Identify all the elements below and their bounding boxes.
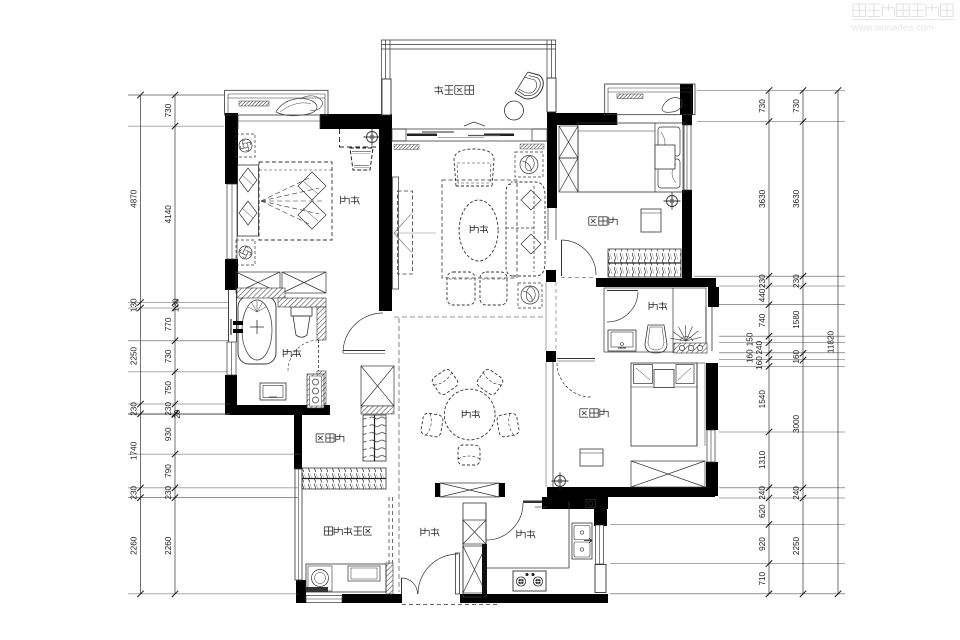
svg-text:3630: 3630: [758, 189, 767, 208]
svg-text:130: 130: [129, 298, 138, 312]
svg-text:230: 230: [792, 274, 801, 288]
svg-text:230: 230: [129, 402, 138, 416]
svg-text:1580: 1580: [792, 310, 801, 329]
svg-text:11820: 11820: [827, 330, 836, 353]
svg-text:240: 240: [792, 486, 801, 500]
svg-text:4140: 4140: [164, 205, 173, 224]
svg-text:750: 750: [164, 381, 173, 395]
svg-text:2260: 2260: [129, 536, 138, 555]
svg-text:3000: 3000: [792, 414, 801, 433]
svg-text:150: 150: [746, 332, 755, 346]
svg-text:2260: 2260: [164, 536, 173, 555]
svg-text:130: 130: [171, 298, 180, 312]
svg-text:4870: 4870: [129, 189, 138, 208]
svg-text:230: 230: [758, 274, 767, 288]
svg-text:920: 920: [758, 537, 767, 551]
svg-text:790: 790: [164, 464, 173, 478]
svg-text:160: 160: [746, 349, 755, 363]
svg-text:1540: 1540: [758, 390, 767, 409]
svg-text:730: 730: [758, 99, 767, 113]
svg-text:770: 770: [164, 317, 173, 331]
svg-text:930: 930: [164, 427, 173, 441]
svg-text:730: 730: [164, 103, 173, 117]
svg-text:240: 240: [758, 486, 767, 500]
svg-text:www.wonadea.com: www.wonadea.com: [851, 23, 934, 34]
svg-text:3630: 3630: [792, 189, 801, 208]
svg-text:230: 230: [129, 486, 138, 500]
svg-text:1310: 1310: [758, 450, 767, 469]
svg-text:2250: 2250: [129, 346, 138, 365]
svg-text:730: 730: [792, 99, 801, 113]
svg-text:620: 620: [758, 504, 767, 518]
svg-text:160: 160: [755, 356, 764, 370]
svg-text:2250: 2250: [792, 536, 801, 555]
svg-text:230: 230: [164, 402, 173, 416]
svg-text:230: 230: [164, 485, 173, 499]
svg-text:240: 240: [755, 340, 764, 354]
svg-text:710: 710: [758, 571, 767, 585]
svg-text:160: 160: [792, 349, 801, 363]
svg-text:730: 730: [164, 349, 173, 363]
svg-text:20: 20: [173, 409, 182, 419]
svg-text:440: 440: [758, 288, 767, 302]
svg-text:1740: 1740: [129, 441, 138, 460]
svg-text:740: 740: [758, 313, 767, 327]
